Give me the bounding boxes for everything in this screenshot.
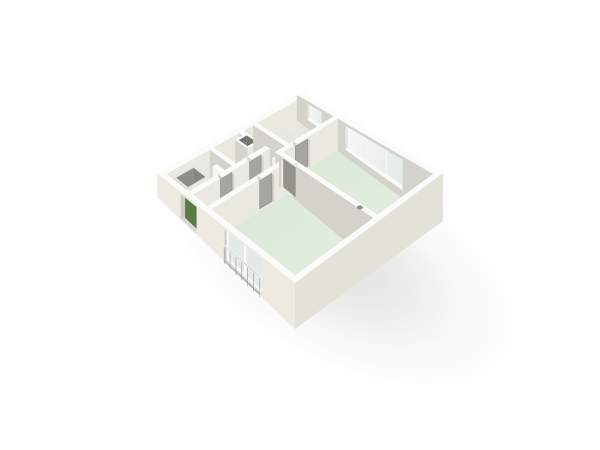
floorplan-3d-render [0,0,600,450]
wall-se-sw [290,279,295,329]
living-room-window-mullion-2 [386,146,387,175]
floorplan-viewport [0,0,600,450]
balcony-railing-baluster [253,271,254,292]
balcony-railing-baluster [241,261,242,281]
balcony-railing-baluster [230,250,231,269]
living-room-window-mullion-1 [367,135,368,162]
living-room-west-wall-a-sw [279,155,281,188]
balcony-railing-baluster [259,276,260,298]
balcony-railing-baluster [236,255,237,275]
balcony-railing-baluster [224,245,225,264]
balcony-railing-baluster [247,266,248,287]
floor-object [357,206,363,210]
